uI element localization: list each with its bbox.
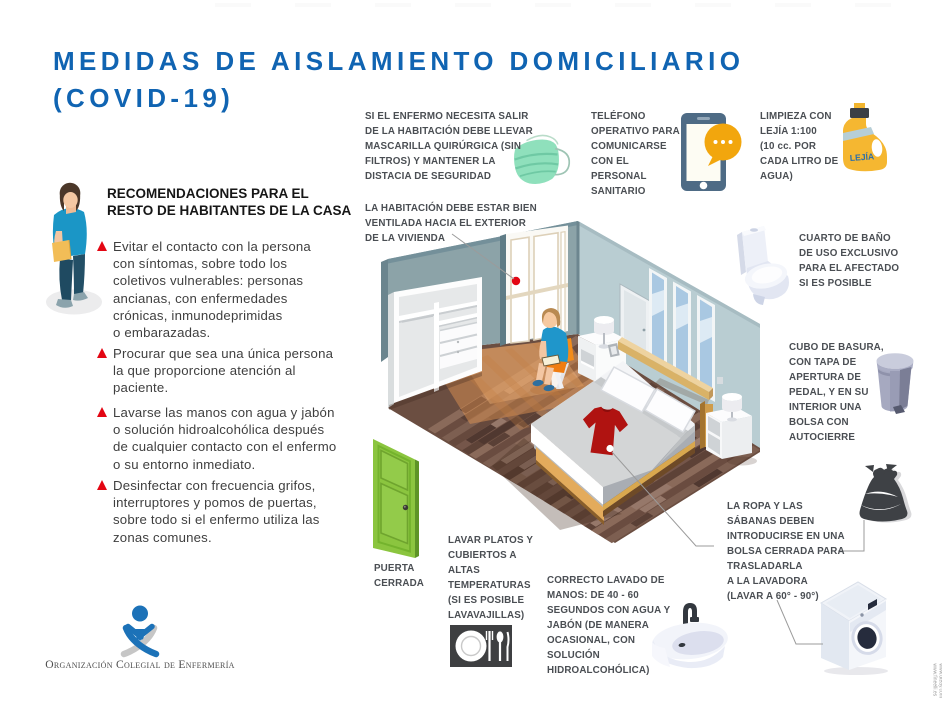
svg-text:LEJÍA: LEJÍA <box>849 151 874 163</box>
